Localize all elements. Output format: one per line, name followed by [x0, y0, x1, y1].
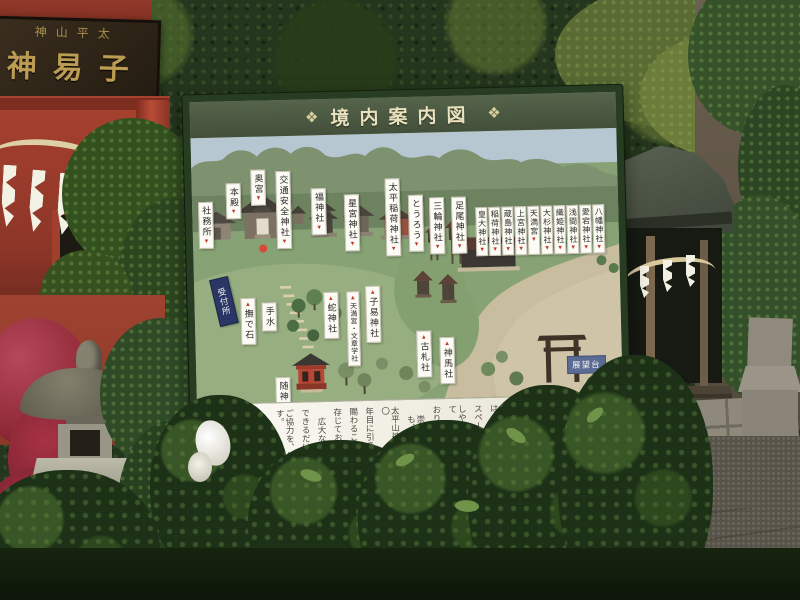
label-text: 撫で石	[244, 309, 254, 341]
map-label-ohirainari: 太平稲荷神社▼	[384, 178, 401, 256]
label-text: 上宮神社	[516, 209, 525, 245]
label-text: 奥宮	[253, 174, 263, 195]
map-label-toro: とうろう▼	[408, 195, 424, 252]
up-marker-icon: ▲	[245, 302, 251, 308]
foreground-dark-strip	[0, 548, 800, 600]
down-marker-icon: ▼	[544, 246, 550, 252]
label-text: 愛宕神社	[581, 208, 590, 244]
label-text: 足尾神社	[454, 201, 464, 243]
down-marker-icon: ▼	[391, 246, 397, 252]
map-label-osugi: 大杉神社▼	[540, 205, 553, 254]
down-marker-icon: ▼	[518, 246, 524, 252]
map-label-nadeishi: ▲撫で石	[240, 298, 256, 345]
down-marker-icon: ▼	[505, 246, 511, 252]
map-label-jogu: 上宮神社▼	[514, 206, 527, 255]
lantern-window	[70, 430, 100, 456]
diamond-ornament-icon: ❖	[305, 108, 319, 126]
label-text: 古札社	[419, 342, 429, 374]
up-marker-icon: ▲	[444, 341, 450, 347]
down-marker-icon: ▼	[457, 244, 463, 250]
down-marker-icon: ▼	[492, 247, 498, 253]
map-label-tenmangu-bunsho: ▲天満宮・文章学社	[346, 291, 361, 366]
map-label-hachiman: 八幡神社▼	[592, 204, 605, 253]
label-text: 受付所	[216, 287, 231, 317]
down-marker-icon: ▼	[203, 238, 209, 244]
label-text: 蔵島神社	[503, 209, 512, 245]
up-marker-icon: ▲	[421, 335, 427, 341]
label-text: 織姫神社	[555, 208, 564, 244]
map-label-koyasu: ▲子易神社	[365, 286, 381, 343]
up-marker-icon: ▲	[328, 296, 334, 302]
label-text: 随神門	[278, 381, 288, 404]
map-label-ashio: 足尾神社▼	[451, 197, 467, 254]
map-label-kotai: 皇大神社▼	[475, 207, 488, 256]
up-marker-icon: ▲	[370, 290, 376, 296]
map-label-kotsuanzen: 交通安全神社▼	[275, 171, 292, 249]
label-text: 神馬社	[443, 348, 453, 380]
label-text: 大杉神社	[542, 208, 551, 244]
map-label-shinmesha: ▲神馬社	[439, 337, 455, 384]
label-text: 天満宮・文章学社	[349, 302, 357, 362]
map-label-miwa: 三輪神社▼	[429, 197, 445, 254]
label-text: 稲荷神社	[490, 210, 499, 246]
shrine-label-cluster: 皇大神社▼ 稲荷神社▼ 蔵島神社▼ 上宮神社▼ 天満宮▼ 大杉神社▼ 織姫神社▼…	[475, 204, 614, 256]
down-marker-icon: ▼	[435, 244, 441, 250]
label-text: 社務所	[201, 206, 211, 238]
down-marker-icon: ▼	[570, 245, 576, 251]
down-marker-icon: ▼	[350, 241, 356, 247]
label-text: 本殿	[229, 187, 239, 208]
label-text: 手水	[265, 306, 275, 327]
plaque-main-row: 子易神	[0, 41, 157, 90]
down-marker-icon: ▼	[316, 225, 322, 231]
map-label-hebijinja: ▲蛇神社	[323, 292, 339, 339]
label-text: 子易神社	[368, 297, 378, 339]
diamond-ornament-icon: ❖	[487, 104, 501, 122]
map-label-orihime: 織姫神社▼	[553, 205, 566, 254]
plaque-top-row: 太平山神	[0, 22, 158, 44]
map-label-inari: 稲荷神社▼	[488, 207, 501, 256]
down-marker-icon: ▼	[414, 242, 420, 248]
stone-pedestal-flare	[738, 366, 800, 392]
label-text: 天満宮	[529, 209, 538, 236]
down-marker-icon: ▼	[479, 247, 485, 253]
down-marker-icon: ▼	[557, 245, 563, 251]
label-text: 太平稲荷神社	[388, 182, 399, 245]
white-flower	[188, 452, 212, 482]
down-marker-icon: ▼	[596, 244, 602, 250]
down-marker-icon: ▼	[531, 237, 537, 243]
label-text: 浅間神社	[568, 208, 577, 244]
label-text: 八幡神社	[594, 207, 603, 243]
label-text: とうろう	[411, 199, 421, 241]
label-text: 交通安全神社	[278, 175, 289, 238]
down-marker-icon: ▼	[231, 209, 237, 215]
map-label-atago: 愛宕神社▼	[579, 204, 592, 253]
label-text: 三輪神社	[432, 201, 442, 243]
map-label-kofudasha: ▲古札社	[416, 330, 432, 377]
down-marker-icon: ▼	[281, 239, 287, 245]
label-text: 皇大神社	[477, 210, 486, 246]
map-label-sengen: 浅間神社▼	[566, 205, 579, 254]
down-marker-icon: ▼	[583, 245, 589, 251]
map-label-shamusho: 社務所▼	[198, 202, 214, 249]
up-marker-icon: ▲	[350, 295, 356, 301]
label-text: 福神社	[314, 192, 324, 224]
photo-of-shrine-map-signboard: 太平山神 子易神	[0, 0, 800, 600]
map-label-honden: 本殿▼	[226, 183, 242, 219]
map-label-fukujinja: 福神社▼	[311, 188, 327, 235]
map-label-hoshinomiya: 星宮神社▼	[344, 194, 360, 251]
map-label-tenmangu: 天満宮▼	[527, 206, 540, 255]
label-text: 星宮神社	[347, 198, 357, 240]
label-text: 蛇神社	[326, 303, 336, 335]
map-label-zuishinmon: 随神門	[275, 377, 291, 404]
map-label-okumiya: 奥宮▼	[250, 169, 266, 205]
sign-title: 境内案内図	[330, 100, 476, 131]
stone-pedestal-top	[747, 317, 793, 371]
illustrated-map: 社務所▼ 本殿▼ 奥宮▼ 交通安全神社▼ 福神社▼ 星宮神社▼ 太平稲荷神社▼ …	[190, 128, 622, 404]
down-marker-icon: ▼	[255, 196, 261, 202]
map-label-chozu: 手水	[261, 302, 277, 331]
map-label-kurashima: 蔵島神社▼	[501, 206, 514, 255]
left-shrine-name-plaque: 太平山神 子易神	[0, 16, 161, 107]
